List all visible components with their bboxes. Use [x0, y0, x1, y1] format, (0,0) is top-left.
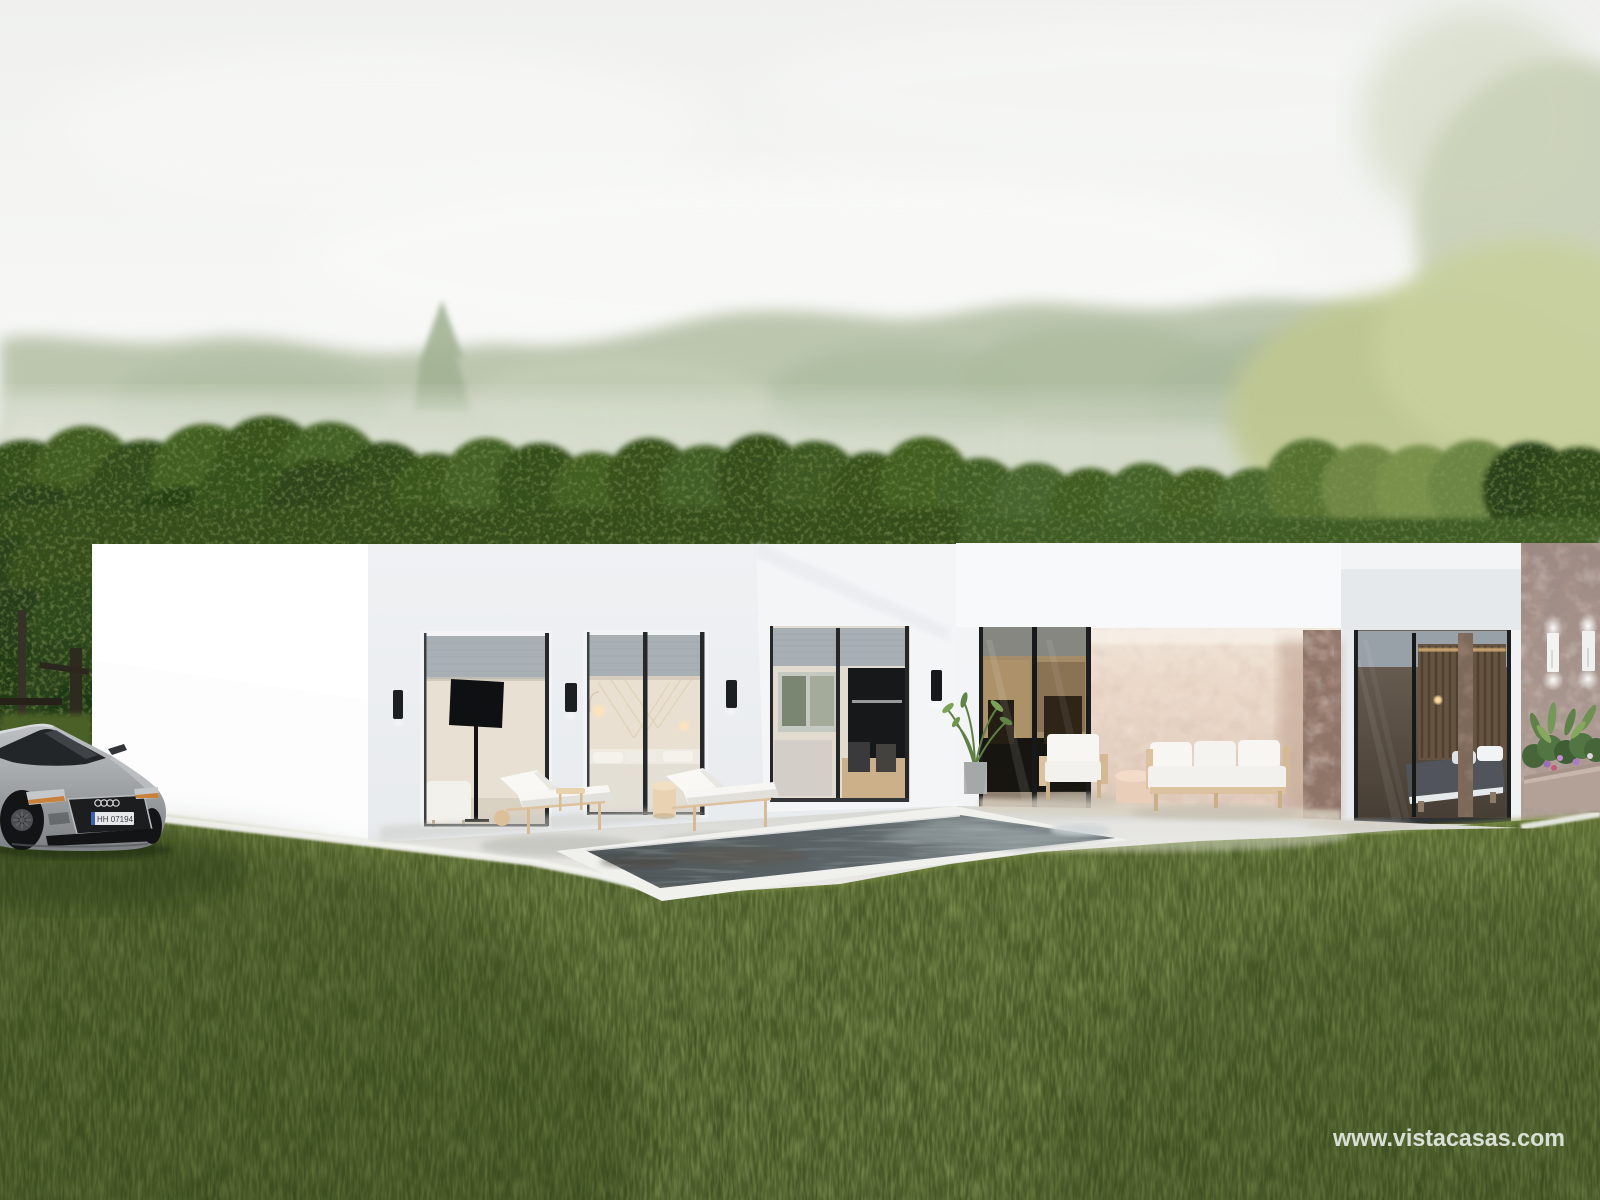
svg-text:HH 07194: HH 07194	[97, 815, 134, 824]
svg-text:www.vistacasas.com: www.vistacasas.com	[1332, 1125, 1565, 1152]
